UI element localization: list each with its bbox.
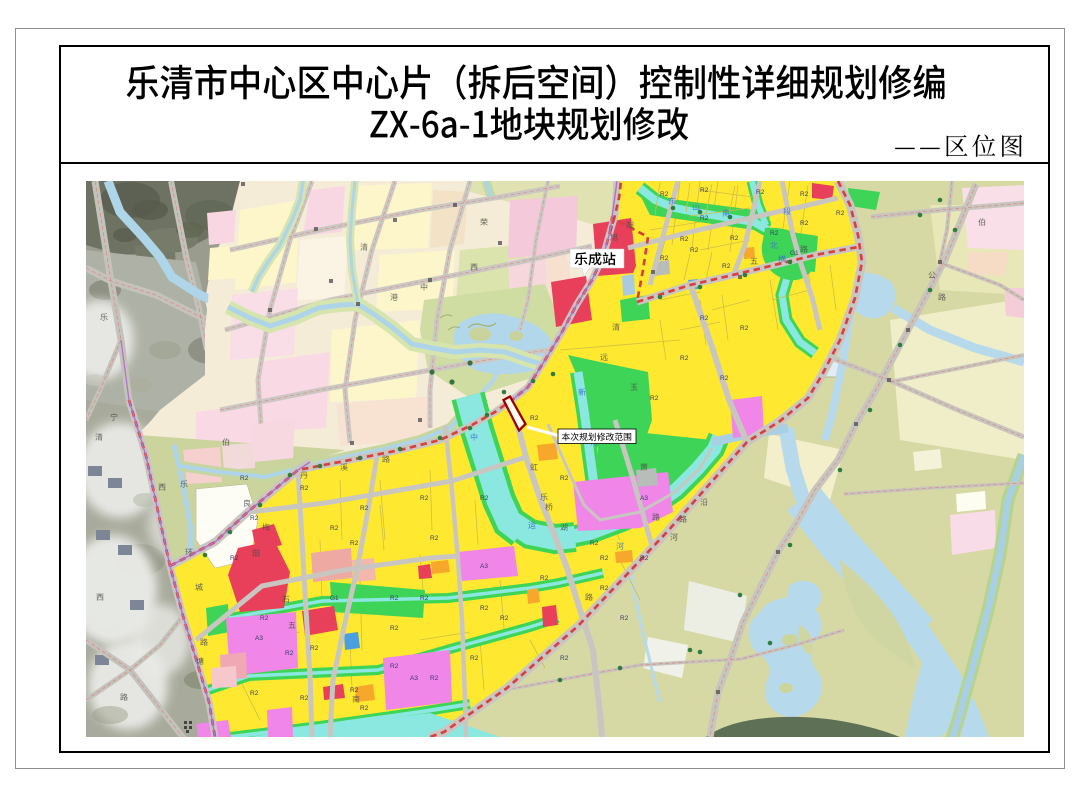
svg-text:R2: R2 — [640, 555, 649, 562]
svg-text:R2: R2 — [500, 615, 509, 622]
svg-text:R2: R2 — [600, 585, 609, 592]
svg-text:R2: R2 — [660, 191, 669, 198]
svg-text:R2: R2 — [720, 375, 729, 382]
svg-text:R2: R2 — [600, 555, 609, 562]
svg-text:R2: R2 — [250, 515, 259, 522]
svg-text:R2: R2 — [756, 189, 765, 196]
svg-text:R2: R2 — [620, 615, 629, 622]
svg-text:R2: R2 — [300, 485, 309, 492]
svg-text:R2: R2 — [730, 235, 739, 242]
svg-text:R2: R2 — [836, 210, 845, 217]
svg-text:R2: R2 — [300, 695, 309, 702]
svg-text:R2: R2 — [470, 655, 479, 662]
svg-text:R2: R2 — [390, 595, 399, 602]
svg-text:A3: A3 — [410, 675, 418, 682]
svg-text:R2: R2 — [350, 687, 359, 694]
svg-text:R2: R2 — [700, 215, 709, 222]
svg-text:R2: R2 — [350, 540, 359, 547]
svg-text:G1: G1 — [790, 250, 799, 257]
svg-text:A3: A3 — [640, 495, 648, 502]
svg-text:R2: R2 — [770, 230, 779, 237]
svg-text:R2: R2 — [240, 475, 249, 482]
svg-text:R2: R2 — [700, 315, 709, 322]
svg-text:A3: A3 — [255, 635, 263, 642]
svg-text:R2: R2 — [420, 495, 429, 502]
svg-text:R2: R2 — [530, 415, 539, 422]
svg-text:R2: R2 — [390, 663, 399, 670]
svg-text:R2: R2 — [680, 236, 689, 243]
svg-text:R2: R2 — [430, 675, 439, 682]
svg-text:R2: R2 — [560, 475, 569, 482]
svg-text:R2: R2 — [480, 495, 489, 502]
svg-text:R2: R2 — [230, 555, 239, 562]
svg-text:R2: R2 — [360, 505, 369, 512]
svg-text:R2: R2 — [360, 705, 369, 712]
svg-text:R2: R2 — [390, 625, 399, 632]
svg-text:R2: R2 — [680, 355, 689, 362]
svg-text:R2: R2 — [420, 595, 429, 602]
svg-text:G1: G1 — [330, 595, 339, 602]
svg-text:R2: R2 — [260, 615, 269, 622]
svg-text:R2: R2 — [590, 540, 599, 547]
svg-text:R2: R2 — [480, 605, 489, 612]
svg-text:R2: R2 — [800, 220, 809, 227]
svg-text:R2: R2 — [310, 645, 319, 652]
svg-text:R2: R2 — [560, 655, 569, 662]
svg-text:R2: R2 — [650, 395, 659, 402]
svg-text:R2: R2 — [285, 650, 294, 657]
svg-text:R2: R2 — [740, 325, 749, 332]
svg-text:R2: R2 — [660, 255, 669, 262]
svg-text:R2: R2 — [250, 690, 259, 697]
svg-text:A3: A3 — [480, 563, 488, 570]
svg-text:R2: R2 — [722, 263, 731, 270]
svg-text:R2: R2 — [690, 247, 699, 254]
svg-text:R2: R2 — [700, 187, 709, 194]
svg-text:R2: R2 — [430, 535, 439, 542]
svg-text:R2: R2 — [330, 525, 339, 532]
svg-text:R2: R2 — [540, 575, 549, 582]
svg-text:R2: R2 — [800, 191, 809, 198]
